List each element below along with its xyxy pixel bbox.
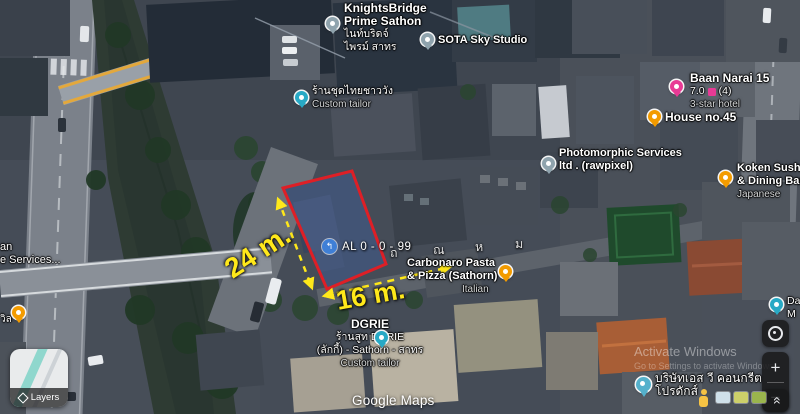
poi-label-house45[interactable]: House no.45 <box>665 111 736 124</box>
poi-pin-dgrie[interactable] <box>375 331 388 344</box>
poi-pin-left-cafe[interactable] <box>12 306 25 319</box>
depth-dimension-label: 24 m. <box>219 219 296 285</box>
parcel-label: ↰ AL 0 - 0 - 99 <box>322 239 411 254</box>
rating-badge-icon <box>708 88 716 96</box>
poi-pin-thai-tailor[interactable] <box>295 91 308 104</box>
poi-label-thai-tailor[interactable]: ร้านชุดไทยชาววัง Custom tailor <box>312 85 393 111</box>
map-preview-thumbnail-2[interactable] <box>734 392 748 403</box>
map-preview-thumbnail-3[interactable] <box>752 392 766 403</box>
chevrons-up-icon: » <box>767 397 783 404</box>
poi-pin-photomorphic[interactable] <box>542 157 555 170</box>
poi-label-left-cafe[interactable]: วิล <box>0 313 12 326</box>
poi-label-sota[interactable]: SOTA Sky Studio <box>438 34 527 47</box>
poi-pin-right-truncated[interactable] <box>770 298 783 311</box>
poi-pin-sota[interactable] <box>421 33 434 46</box>
google-maps-watermark: Google Maps <box>352 393 435 408</box>
poi-label-carbonaro[interactable]: Carbonaro Pasta & Pizza (Sathorn) Italia… <box>407 257 497 296</box>
poi-label-knightsbridge[interactable]: KnightsBridge Prime Sathon ไนท์บริดจ์ ไพ… <box>344 2 427 54</box>
poi-label-right-truncated[interactable]: Da M <box>787 295 800 321</box>
poi-pin-koken[interactable] <box>719 171 732 184</box>
my-location-button[interactable] <box>762 320 789 347</box>
activate-windows-watermark: Activate Windows <box>634 344 737 359</box>
hotel-rating: 7.0 (4) <box>690 85 769 98</box>
layers-label: Layers <box>31 392 60 403</box>
my-location-icon <box>768 326 783 341</box>
poi-label-koken[interactable]: Koken Sushi & Dining Bar Japanese <box>737 162 800 201</box>
poi-label-dgrie[interactable]: DGRIE ร้านสูท DGRIE (ลักกี้) - Sathorn -… <box>300 318 440 370</box>
width-dimension-label: 16 m. <box>334 274 407 317</box>
zoom-in-button[interactable]: + <box>762 353 789 382</box>
collapse-controls-button[interactable]: » <box>762 389 789 412</box>
poi-pin-knightsbridge[interactable] <box>326 17 339 30</box>
poi-pin-house45[interactable] <box>648 110 661 123</box>
poi-pin-baan-narai[interactable] <box>670 80 683 93</box>
layers-icon <box>17 392 28 403</box>
poi-pin-carbonaro[interactable] <box>499 265 512 278</box>
poi-label-photomorphic[interactable]: Photomorphic Services ltd . (rawpixel) <box>559 147 682 173</box>
layers-button[interactable]: Layers <box>10 349 68 407</box>
road-letter-2: ณ <box>433 240 445 260</box>
plot-outline <box>283 171 386 289</box>
poi-label-baan-narai[interactable]: Baan Narai 15 7.0 (4) 3-star hotel <box>690 72 769 111</box>
poi-label-left-truncated[interactable]: an e Services... <box>0 241 61 267</box>
parcel-arrow-icon: ↰ <box>322 239 337 254</box>
google-maps-satellite-view[interactable]: KnightsBridge Prime Sathon ไนท์บริดจ์ ไพ… <box>0 0 800 414</box>
activate-windows-subtext: Go to Settings to activate Windows. <box>634 361 776 371</box>
map-preview-thumbnail-1[interactable] <box>716 392 730 403</box>
pegman-icon[interactable] <box>699 389 708 407</box>
poi-pin-sv-concrete[interactable] <box>636 377 651 392</box>
road-letter-4: ม <box>515 234 523 254</box>
road-letter-3: ห <box>475 237 483 257</box>
